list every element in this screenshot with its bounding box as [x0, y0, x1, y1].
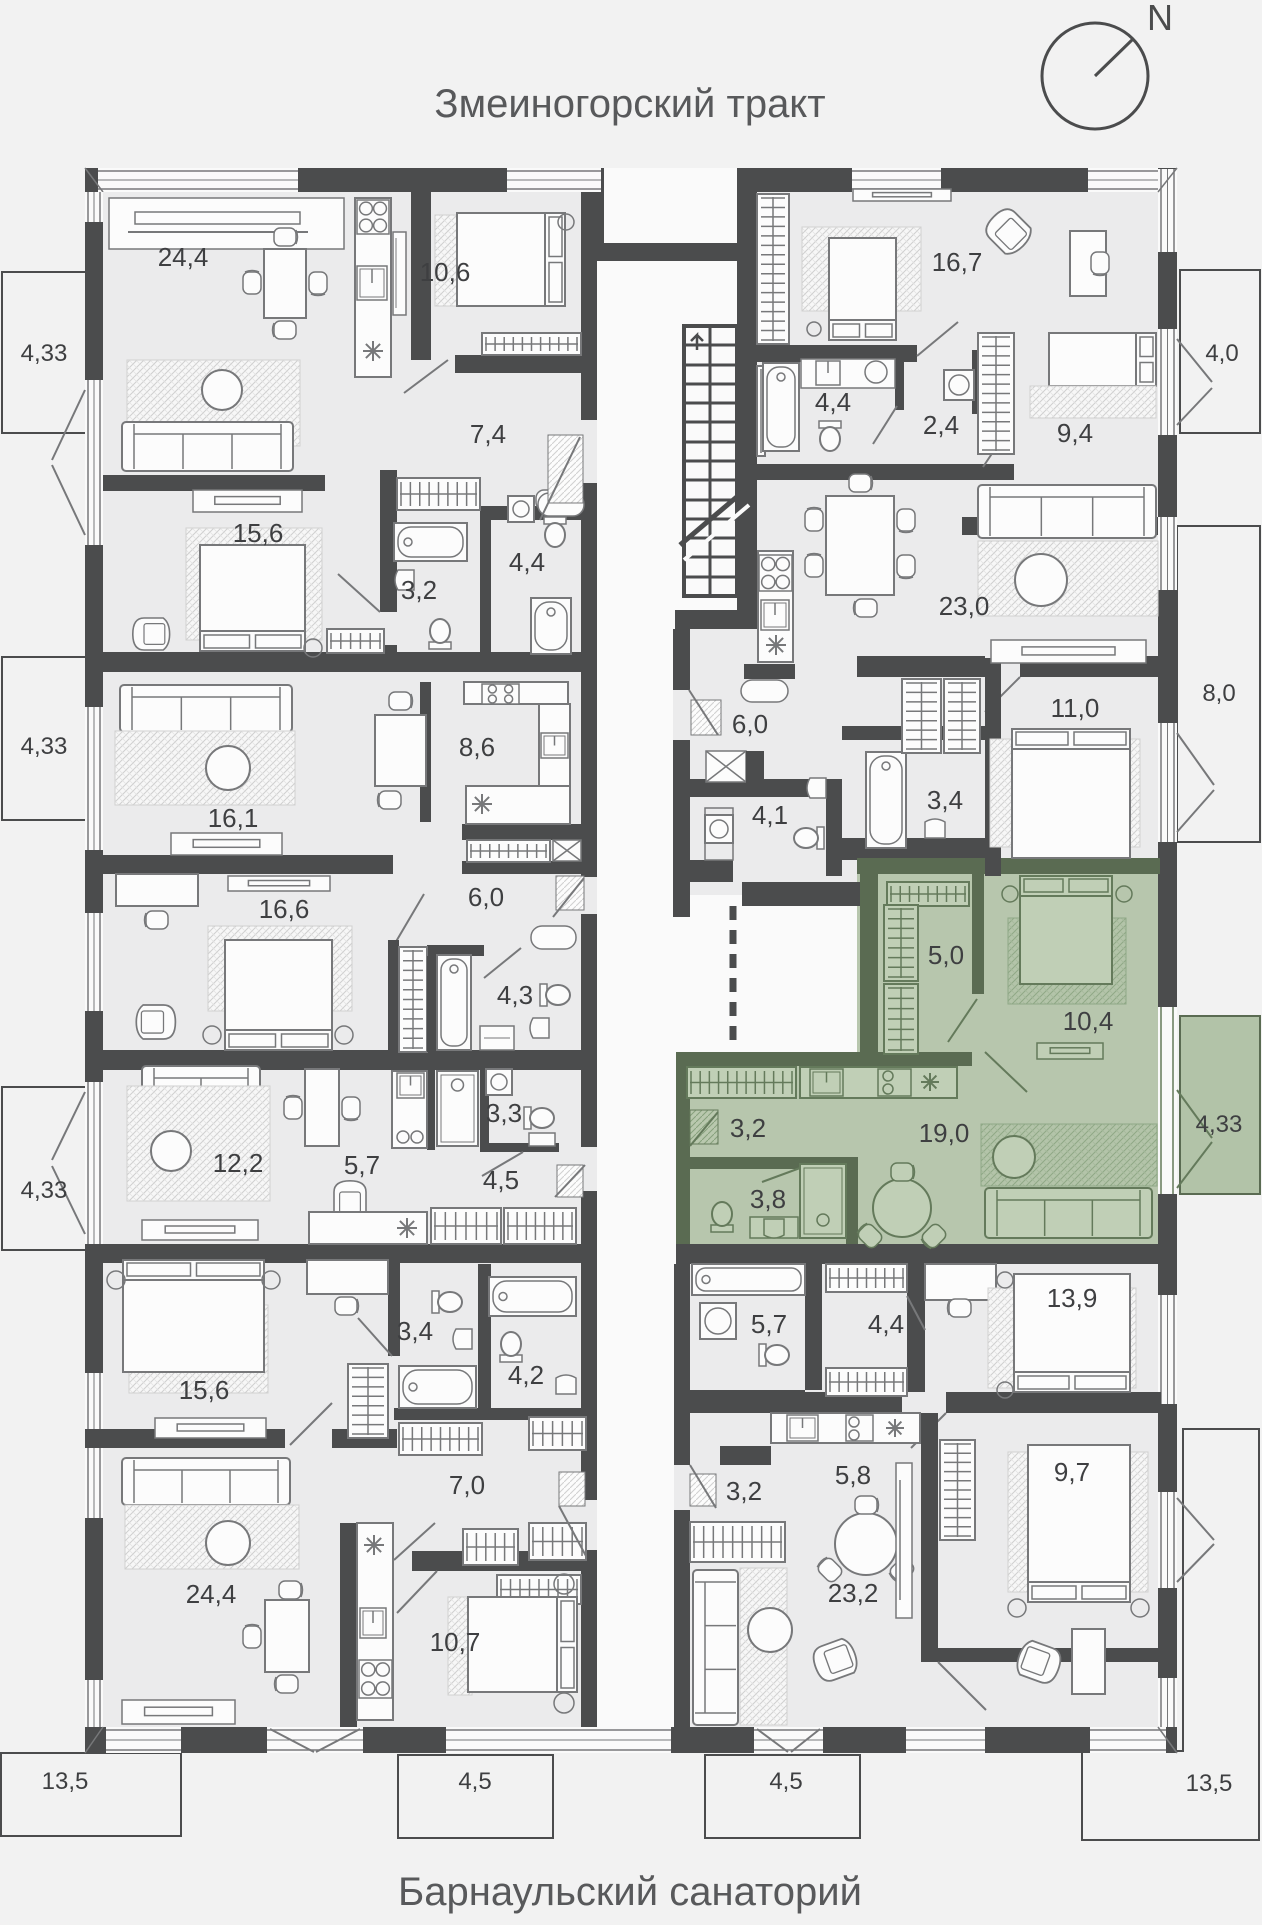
svg-text:15,6: 15,6 [179, 1375, 230, 1405]
svg-text:11,0: 11,0 [1051, 693, 1100, 723]
svg-text:4,33: 4,33 [21, 1177, 68, 1204]
svg-text:4,4: 4,4 [509, 547, 545, 577]
svg-text:3,3: 3,3 [486, 1098, 522, 1128]
svg-text:13,5: 13,5 [1186, 1770, 1233, 1797]
svg-text:8,0: 8,0 [1202, 680, 1235, 707]
svg-text:4,4: 4,4 [815, 387, 851, 417]
svg-text:9,7: 9,7 [1054, 1457, 1090, 1487]
svg-text:16,7: 16,7 [932, 247, 983, 277]
svg-text:23,2: 23,2 [828, 1578, 879, 1608]
svg-text:3,2: 3,2 [401, 575, 437, 605]
svg-text:4,33: 4,33 [1196, 1111, 1243, 1138]
svg-text:24,4: 24,4 [158, 242, 209, 272]
svg-text:3,2: 3,2 [730, 1113, 766, 1143]
svg-text:3,2: 3,2 [726, 1476, 762, 1506]
svg-text:24,4: 24,4 [186, 1579, 237, 1609]
svg-text:4,5: 4,5 [458, 1768, 491, 1795]
svg-text:3,4: 3,4 [927, 785, 963, 815]
svg-text:8,6: 8,6 [459, 732, 495, 762]
svg-text:4,5: 4,5 [483, 1165, 519, 1195]
svg-text:7,4: 7,4 [470, 419, 506, 449]
svg-text:4,2: 4,2 [508, 1360, 544, 1390]
svg-text:N: N [1147, 0, 1173, 38]
svg-text:16,6: 16,6 [259, 894, 310, 924]
svg-text:23,0: 23,0 [939, 591, 990, 621]
svg-text:16,1: 16,1 [208, 803, 259, 833]
svg-text:6,0: 6,0 [732, 709, 768, 739]
svg-text:15,6: 15,6 [233, 518, 284, 548]
svg-text:3,4: 3,4 [397, 1316, 433, 1346]
svg-text:4,33: 4,33 [21, 340, 68, 367]
svg-text:5,7: 5,7 [751, 1309, 787, 1339]
svg-text:5,7: 5,7 [344, 1150, 380, 1180]
svg-text:5,8: 5,8 [835, 1460, 871, 1490]
svg-text:13,9: 13,9 [1047, 1283, 1098, 1313]
svg-text:13,5: 13,5 [42, 1768, 89, 1795]
svg-text:6,0: 6,0 [468, 882, 504, 912]
svg-text:5,0: 5,0 [928, 940, 964, 970]
svg-text:Змеиногорский тракт: Змеиногорский тракт [434, 82, 825, 126]
svg-text:4,4: 4,4 [868, 1309, 904, 1339]
svg-text:10,4: 10,4 [1063, 1006, 1114, 1036]
svg-text:4,33: 4,33 [21, 733, 68, 760]
svg-text:4,5: 4,5 [769, 1768, 802, 1795]
svg-text:9,4: 9,4 [1057, 418, 1093, 448]
svg-text:4,0: 4,0 [1205, 340, 1238, 367]
svg-text:Барнаульский санаторий: Барнаульский санаторий [398, 1870, 862, 1914]
svg-text:3,8: 3,8 [750, 1184, 786, 1214]
svg-text:10,6: 10,6 [420, 257, 471, 287]
svg-text:10,7: 10,7 [430, 1627, 481, 1657]
svg-text:7,0: 7,0 [449, 1470, 485, 1500]
svg-text:2,4: 2,4 [923, 410, 959, 440]
svg-text:4,1: 4,1 [752, 800, 788, 830]
svg-text:19,0: 19,0 [919, 1118, 970, 1148]
svg-text:4,3: 4,3 [497, 980, 533, 1010]
svg-text:12,2: 12,2 [213, 1148, 264, 1178]
